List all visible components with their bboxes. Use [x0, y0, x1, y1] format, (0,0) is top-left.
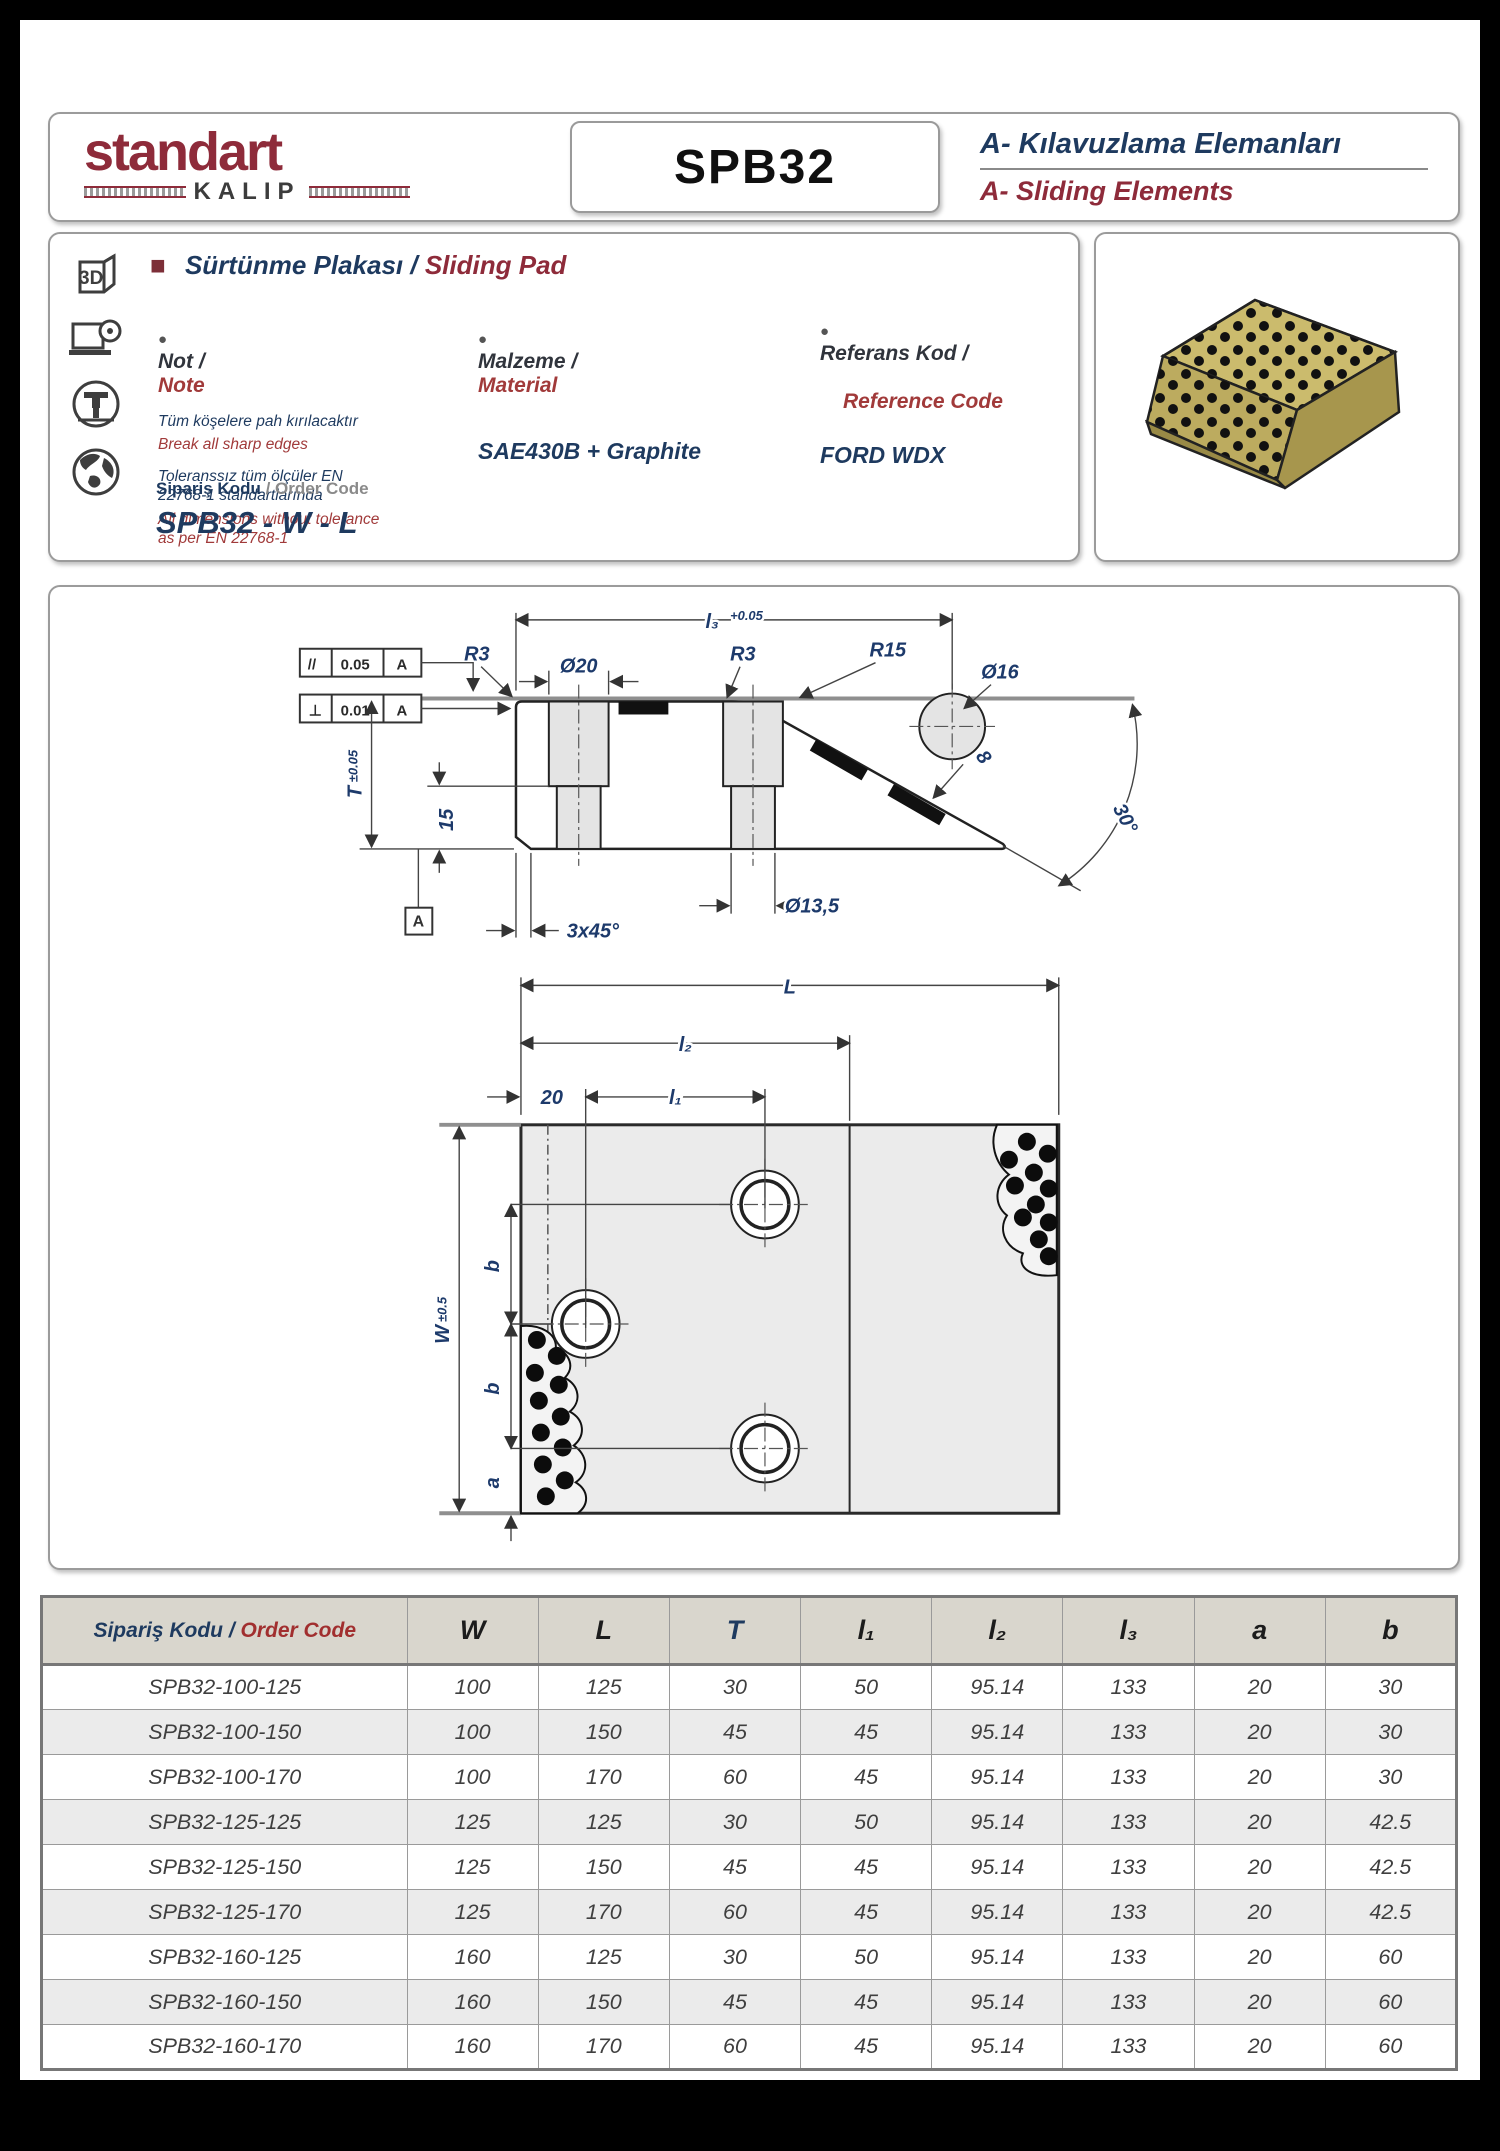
value-cell: 50	[801, 1800, 932, 1845]
material-heading: ● Malzeme / Material	[478, 302, 758, 398]
note-line1-tr: Tüm köşelere pah kırılacaktır	[158, 412, 388, 431]
value-cell: 133	[1063, 1755, 1194, 1800]
value-cell: 20	[1194, 1800, 1325, 1845]
dim-15: 15	[436, 808, 458, 831]
label-r15: R15	[870, 640, 907, 662]
reference-label-tr: Referans Kod /	[820, 342, 968, 365]
header: standart KALIP SPB32 A- Kılavuzlama Elem…	[48, 112, 1460, 222]
value-cell: 95.14	[932, 1890, 1063, 1935]
value-cell: 30	[1325, 1755, 1456, 1800]
order-code-cell: SPB32-125-150	[42, 1845, 408, 1890]
svg-text:3D: 3D	[79, 268, 103, 289]
bullet-icon: ●	[820, 323, 829, 340]
laptop-cd-icon	[69, 316, 123, 362]
graphite-plug-slope-2	[887, 784, 945, 825]
cnc-mill-icon	[70, 378, 122, 430]
datum-a-label: A	[413, 914, 425, 931]
col-header-2: L	[538, 1597, 669, 1665]
value-cell: 60	[669, 1890, 800, 1935]
reference-value: FORD WDX	[820, 442, 1070, 469]
note-heading: ● Not / Note	[158, 302, 458, 398]
reference-column: ● Referans Kod / Reference Code FORD WDX	[820, 294, 1070, 469]
label-r3-mid: R3	[730, 644, 755, 666]
value-cell: 60	[669, 1755, 800, 1800]
category-title-tr: A- Kılavuzlama Elemanları	[980, 128, 1428, 168]
order-code-cell: SPB32-125-125	[42, 1800, 408, 1845]
dim-20: 20	[540, 1087, 563, 1109]
value-cell: 133	[1063, 1980, 1194, 2025]
dim-l3: l₃	[706, 611, 720, 633]
value-cell: 150	[538, 1845, 669, 1890]
gdt-parallel-datum: A	[396, 657, 407, 674]
value-cell: 95.14	[932, 1980, 1063, 2025]
section-title-en: Sliding Pad	[425, 250, 567, 280]
value-cell: 30	[669, 1665, 800, 1710]
dim-l2: l₂	[679, 1034, 693, 1056]
category-block: A- Kılavuzlama Elemanları A- Sliding Ele…	[980, 128, 1458, 207]
note-label-en: Note	[158, 374, 205, 397]
dim-a: a	[482, 1477, 504, 1488]
value-cell: 95.14	[932, 1845, 1063, 1890]
logo-stripe-left	[84, 186, 186, 198]
dim-b1: b	[482, 1260, 504, 1272]
table-row: SPB32-160-170160170604595.141332060	[42, 2025, 1457, 2070]
value-cell: 133	[1063, 1665, 1194, 1710]
value-cell: 95.14	[932, 1710, 1063, 1755]
material-label-en: Material	[478, 374, 557, 397]
col-header-3: T	[669, 1597, 800, 1665]
graphite-plug-top	[619, 702, 669, 715]
value-cell: 45	[669, 1710, 800, 1755]
material-column: ● Malzeme / Material SAE430B + Graphite	[478, 302, 758, 465]
gdt-perp-value: 0.01	[341, 702, 370, 719]
value-cell: 45	[801, 1980, 932, 2025]
table-row: SPB32-125-170125170604595.141332042.5	[42, 1890, 1457, 1935]
table-row: SPB32-100-170100170604595.141332030	[42, 1755, 1457, 1800]
value-cell: 42.5	[1325, 1800, 1456, 1845]
order-code-cell: SPB32-160-170	[42, 2025, 408, 2070]
value-cell: 125	[407, 1845, 538, 1890]
table-row: SPB32-100-125100125305095.141332030	[42, 1665, 1457, 1710]
value-cell: 125	[538, 1935, 669, 1980]
table-row: SPB32-125-150125150454595.141332042.5	[42, 1845, 1457, 1890]
spec-table-body: SPB32-100-125100125305095.141332030SPB32…	[42, 1665, 1457, 2070]
value-cell: 42.5	[1325, 1845, 1456, 1890]
value-cell: 45	[801, 1755, 932, 1800]
brand-name: standart	[84, 128, 410, 177]
value-cell: 45	[669, 1980, 800, 2025]
value-cell: 160	[407, 1980, 538, 2025]
value-cell: 133	[1063, 2025, 1194, 2070]
material-value: SAE430B + Graphite	[478, 438, 758, 465]
value-cell: 95.14	[932, 1665, 1063, 1710]
value-cell: 125	[407, 1800, 538, 1845]
note-line1-en: Break all sharp edges	[158, 435, 388, 454]
value-cell: 60	[669, 2025, 800, 2070]
section-title-tr: Sürtünme Plakası /	[185, 250, 418, 280]
dim-l1: l₁	[669, 1087, 682, 1109]
gdt-parallel-value: 0.05	[341, 657, 370, 674]
value-cell: 125	[538, 1800, 669, 1845]
value-cell: 20	[1194, 1755, 1325, 1800]
value-cell: 30	[1325, 1665, 1456, 1710]
col-header-8: b	[1325, 1597, 1456, 1665]
value-cell: 125	[538, 1665, 669, 1710]
value-cell: 125	[407, 1890, 538, 1935]
value-cell: 30	[1325, 1710, 1456, 1755]
col-header-order-code: Sipariş Kodu / Order Code	[42, 1597, 408, 1665]
technical-drawing-panel: l₃ +0.05 R3 Ø20 R3 R15 Ø16	[48, 585, 1460, 1570]
value-cell: 170	[538, 1890, 669, 1935]
value-cell: 100	[407, 1755, 538, 1800]
part-code: SPB32	[674, 140, 836, 195]
page: standart KALIP SPB32 A- Kılavuzlama Elem…	[20, 20, 1480, 2080]
order-code-label-en: Order Code	[275, 479, 369, 498]
icon-column: 3D	[62, 248, 130, 498]
value-cell: 20	[1194, 1980, 1325, 2025]
order-code-cell: SPB32-100-125	[42, 1665, 408, 1710]
dim-t: T	[345, 784, 367, 798]
col-header-5: l₂	[932, 1597, 1063, 1665]
globe-icon	[70, 446, 122, 498]
col-header-7: a	[1194, 1597, 1325, 1665]
table-row: SPB32-160-150160150454595.141332060	[42, 1980, 1457, 2025]
gdt-perp-icon: ⊥	[309, 702, 322, 719]
col-header-1: W	[407, 1597, 538, 1665]
order-code-label-tr: Sipariş Kodu	[156, 479, 261, 498]
value-cell: 20	[1194, 1665, 1325, 1710]
technical-drawing: l₃ +0.05 R3 Ø20 R3 R15 Ø16	[50, 587, 1458, 1568]
value-cell: 45	[801, 2025, 932, 2070]
value-cell: 160	[407, 1935, 538, 1980]
value-cell: 170	[538, 2025, 669, 2070]
dim-w-tol: ±0.5	[434, 1296, 449, 1322]
note-label-tr: Not /	[158, 350, 205, 373]
dim-d20: Ø20	[560, 656, 598, 678]
value-cell: 30	[669, 1935, 800, 1980]
3d-cube-icon: 3D	[70, 248, 122, 300]
value-cell: 133	[1063, 1890, 1194, 1935]
spec-table-header-row: Sipariş Kodu / Order Code WLTl₁l₂l₃ab	[42, 1597, 1457, 1665]
table-row: SPB32-100-150100150454595.141332030	[42, 1710, 1457, 1755]
datasheet-page: { "header": { "brand_name": "standart", …	[0, 0, 1500, 2151]
value-cell: 45	[669, 1845, 800, 1890]
value-cell: 133	[1063, 1935, 1194, 1980]
dim-l3-tol: +0.05	[730, 608, 764, 623]
value-cell: 133	[1063, 1845, 1194, 1890]
value-cell: 50	[801, 1935, 932, 1980]
info-panel: 3D ■ Sürtünme Plakas	[48, 232, 1080, 562]
dim-chamfer: 3x45°	[567, 921, 620, 943]
value-cell: 95.14	[932, 1935, 1063, 1980]
order-code-sep: /	[261, 479, 275, 498]
value-cell: 60	[1325, 2025, 1456, 2070]
value-cell: 20	[1194, 1710, 1325, 1755]
dim-w: W	[432, 1323, 454, 1344]
value-cell: 20	[1194, 1845, 1325, 1890]
value-cell: 133	[1063, 1710, 1194, 1755]
section-title: ■ Sürtünme Plakası / Sliding Pad	[150, 250, 566, 281]
value-cell: 60	[1325, 1980, 1456, 2025]
dim-L: L	[784, 976, 796, 998]
value-cell: 20	[1194, 1935, 1325, 1980]
order-code-cell: SPB32-100-150	[42, 1710, 408, 1755]
gdt-parallelism-frame: // 0.05 A	[300, 649, 473, 691]
gdt-perp-datum: A	[396, 702, 407, 719]
dim-angle30: 30°	[1108, 800, 1142, 838]
order-code-block: Sipariş Kodu / Order Code SPB32 - W - L	[156, 479, 369, 541]
value-cell: 45	[801, 1845, 932, 1890]
value-cell: 150	[538, 1710, 669, 1755]
table-row: SPB32-125-125125125305095.141332042.5	[42, 1800, 1457, 1845]
order-code-cell: SPB32-100-170	[42, 1755, 408, 1800]
value-cell: 95.14	[932, 1800, 1063, 1845]
value-cell: 50	[801, 1665, 932, 1710]
label-d16: Ø16	[981, 662, 1020, 684]
bullet-icon: ●	[478, 331, 487, 348]
reference-label-en: Reference Code	[843, 390, 1003, 413]
brand-logo: standart KALIP	[50, 128, 410, 207]
value-cell: 30	[669, 1800, 800, 1845]
value-cell: 20	[1194, 2025, 1325, 2070]
value-cell: 133	[1063, 1800, 1194, 1845]
value-cell: 170	[538, 1755, 669, 1800]
order-code-value: SPB32 - W - L	[156, 505, 369, 541]
logo-stripe-right	[309, 186, 411, 198]
part-code-box: SPB32	[570, 121, 940, 213]
dim-d135: Ø13,5	[785, 896, 840, 918]
bullet-icon: ●	[158, 331, 167, 348]
value-cell: 20	[1194, 1890, 1325, 1935]
col-header-6: l₃	[1063, 1597, 1194, 1665]
value-cell: 100	[407, 1665, 538, 1710]
value-cell: 95.14	[932, 1755, 1063, 1800]
reference-heading: ● Referans Kod / Reference Code	[820, 294, 1070, 414]
gdt-parallel-icon: //	[308, 657, 316, 674]
value-cell: 45	[801, 1890, 932, 1935]
col-header-4: l₁	[801, 1597, 932, 1665]
brand-sub-row: KALIP	[84, 178, 410, 206]
value-cell: 60	[1325, 1935, 1456, 1980]
value-cell: 100	[407, 1710, 538, 1755]
value-cell: 95.14	[932, 2025, 1063, 2070]
table-row: SPB32-160-125160125305095.141332060	[42, 1935, 1457, 1980]
order-code-cell: SPB32-160-150	[42, 1980, 408, 2025]
value-cell: 150	[538, 1980, 669, 2025]
dim-b2: b	[482, 1383, 504, 1395]
dim-t-tol: ±0.05	[346, 749, 361, 782]
material-label-tr: Malzeme /	[478, 350, 577, 373]
dim-angle-arc	[1059, 705, 1137, 886]
value-cell: 160	[407, 2025, 538, 2070]
3d-preview-panel	[1094, 232, 1460, 562]
brand-sub: KALIP	[194, 178, 301, 206]
value-cell: 45	[801, 1710, 932, 1755]
3d-part-image	[1127, 272, 1427, 522]
spec-table: Sipariş Kodu / Order Code WLTl₁l₂l₃ab SP…	[40, 1595, 1458, 2071]
graphite-plug-slope-1	[810, 739, 868, 780]
value-cell: 42.5	[1325, 1890, 1456, 1935]
category-title-en: A- Sliding Elements	[980, 170, 1428, 207]
order-code-cell: SPB32-160-125	[42, 1935, 408, 1980]
title-square-bullet: ■	[150, 250, 166, 280]
order-code-cell: SPB32-125-170	[42, 1890, 408, 1935]
